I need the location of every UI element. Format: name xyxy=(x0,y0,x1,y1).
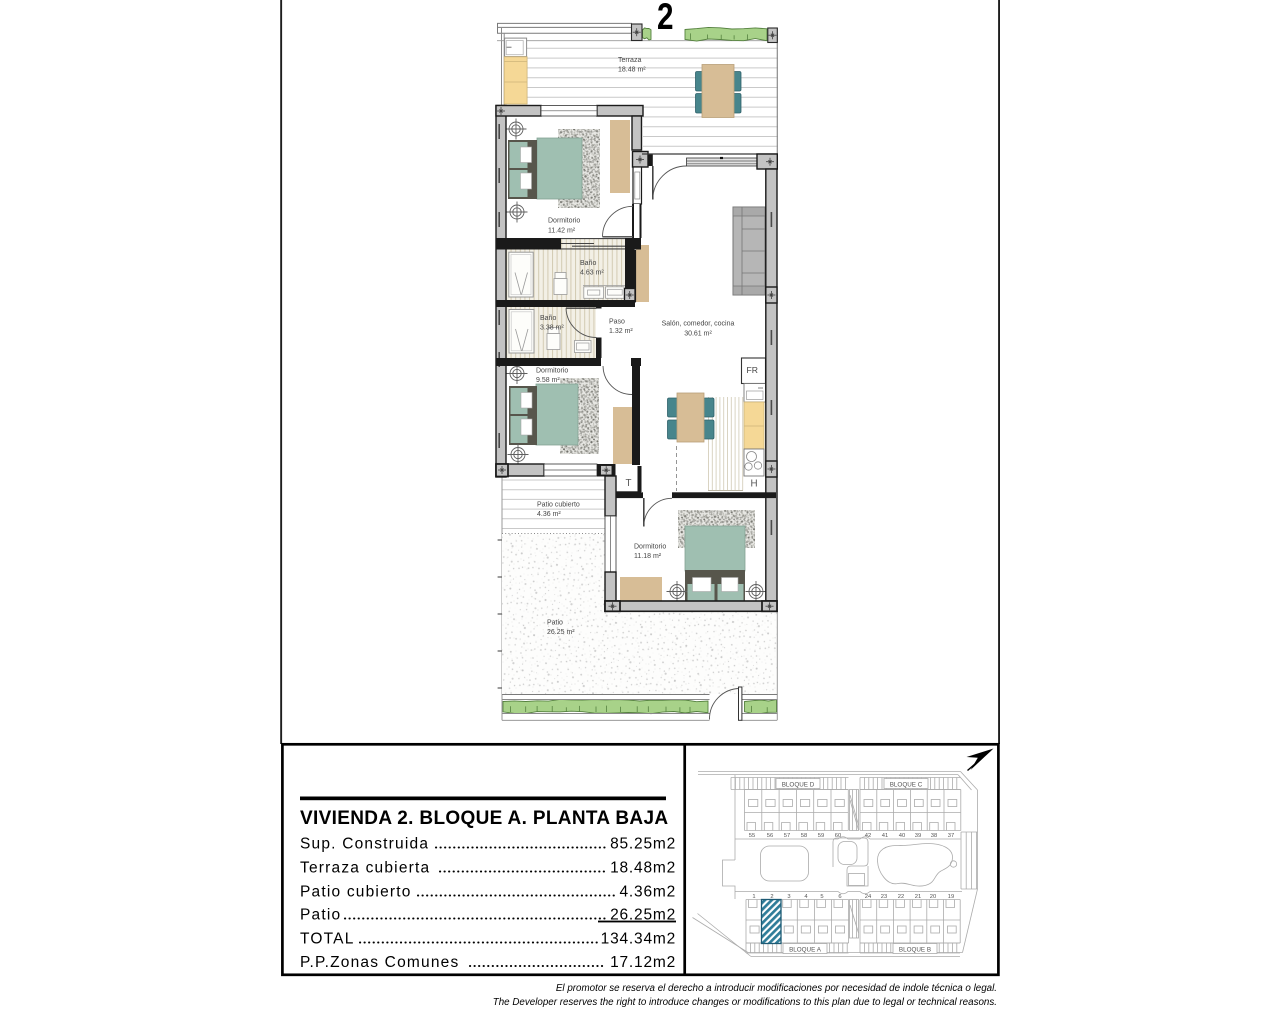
svg-text:Dormitorio: Dormitorio xyxy=(548,218,580,225)
svg-text:BLOQUE D: BLOQUE D xyxy=(782,782,815,789)
svg-text:Baño: Baño xyxy=(580,260,596,267)
svg-text:Patio: Patio xyxy=(300,907,341,924)
svg-text:Terraza: Terraza xyxy=(618,57,641,64)
svg-text:17.12m2: 17.12m2 xyxy=(610,954,676,971)
svg-text:4.36 m²: 4.36 m² xyxy=(537,511,561,518)
svg-text:21: 21 xyxy=(915,894,921,900)
svg-text:134.34m2: 134.34m2 xyxy=(601,931,676,948)
svg-text:57: 57 xyxy=(784,833,790,839)
svg-text:6: 6 xyxy=(838,894,841,900)
svg-text:30.61 m²: 30.61 m² xyxy=(684,331,712,338)
svg-text:Baño: Baño xyxy=(540,315,556,322)
svg-text:18.48m2: 18.48m2 xyxy=(610,860,676,877)
svg-text:El promotor se reserva el dere: El promotor se reserva el derecho a intr… xyxy=(556,983,997,994)
svg-text:38: 38 xyxy=(931,833,937,839)
svg-text:22: 22 xyxy=(898,894,904,900)
svg-text:T: T xyxy=(626,478,632,489)
svg-text:VIVIENDA 2. BLOQUE A. PLANTA B: VIVIENDA 2. BLOQUE A. PLANTA BAJA xyxy=(300,808,668,829)
svg-text:59: 59 xyxy=(818,833,824,839)
svg-text:Dormitorio: Dormitorio xyxy=(536,368,568,375)
svg-text:4.36m2: 4.36m2 xyxy=(620,884,677,901)
svg-text:Salón, comedor, cocina: Salón, comedor, cocina xyxy=(662,321,735,328)
svg-text:3.38 m²: 3.38 m² xyxy=(540,325,564,332)
svg-text:BLOQUE A: BLOQUE A xyxy=(789,947,822,954)
svg-text:20: 20 xyxy=(930,894,936,900)
svg-text:11.18 m²: 11.18 m² xyxy=(634,553,662,560)
svg-text:85.25m2: 85.25m2 xyxy=(610,836,676,853)
svg-text:Sup. Construida: Sup. Construida xyxy=(300,836,429,853)
svg-text:58: 58 xyxy=(801,833,807,839)
svg-text:11.42 m²: 11.42 m² xyxy=(548,228,576,235)
svg-text:3: 3 xyxy=(787,894,790,900)
svg-text:60: 60 xyxy=(835,833,841,839)
svg-text:26.25 m²: 26.25 m² xyxy=(547,629,575,636)
svg-text:55: 55 xyxy=(749,833,755,839)
svg-text:Patio cubierto: Patio cubierto xyxy=(537,502,580,509)
svg-text:FR: FR xyxy=(747,365,758,375)
svg-text:41: 41 xyxy=(882,833,888,839)
svg-text:19: 19 xyxy=(948,894,954,900)
svg-text:9.58 m²: 9.58 m² xyxy=(536,377,560,384)
svg-text:24: 24 xyxy=(865,894,872,900)
svg-text:The Developer reserves the rig: The Developer reserves the right to intr… xyxy=(493,997,997,1008)
svg-text:56: 56 xyxy=(767,833,773,839)
svg-text:H: H xyxy=(750,479,757,490)
svg-text:Patio cubierto: Patio cubierto xyxy=(300,884,412,901)
svg-text:23: 23 xyxy=(881,894,887,900)
svg-text:BLOQUE B: BLOQUE B xyxy=(899,947,931,954)
svg-text:18.48 m²: 18.48 m² xyxy=(618,67,646,74)
svg-text:1.32 m²: 1.32 m² xyxy=(609,328,633,335)
svg-text:Terraza cubierta: Terraza cubierta xyxy=(300,860,430,877)
svg-text:Paso: Paso xyxy=(609,319,625,326)
svg-text:Patio: Patio xyxy=(547,620,563,627)
svg-text:TOTAL: TOTAL xyxy=(300,931,355,948)
svg-text:37: 37 xyxy=(948,833,954,839)
svg-text:40: 40 xyxy=(899,833,905,839)
svg-text:4.63 m²: 4.63 m² xyxy=(580,270,604,277)
svg-text:1: 1 xyxy=(752,894,755,900)
svg-text:P.P.Zonas Comunes: P.P.Zonas Comunes xyxy=(300,954,459,971)
svg-text:39: 39 xyxy=(915,833,921,839)
svg-text:Dormitorio: Dormitorio xyxy=(634,544,666,551)
svg-text:5: 5 xyxy=(820,894,823,900)
svg-text:42: 42 xyxy=(865,833,871,839)
svg-text:2: 2 xyxy=(657,0,674,37)
svg-text:BLOQUE C: BLOQUE C xyxy=(890,782,923,789)
